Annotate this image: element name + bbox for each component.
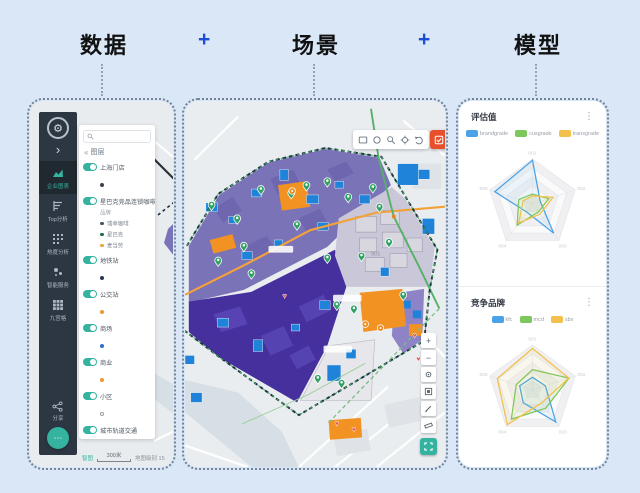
locate-button[interactable] xyxy=(421,367,436,382)
top-list-icon xyxy=(52,199,65,212)
nav-item-label: 九宫格 xyxy=(50,313,67,321)
map-toolbar xyxy=(353,130,429,149)
map-controls: + − xyxy=(420,333,437,455)
layer-toggle[interactable] xyxy=(83,290,97,298)
nav-item-top-list[interactable]: Top分析 xyxy=(39,194,77,227)
layer-label: 地铁站 xyxy=(100,255,119,265)
target-icon[interactable] xyxy=(400,135,410,145)
layers-button[interactable] xyxy=(421,384,436,399)
heart-marker-icon[interactable]: ♥ xyxy=(282,292,287,301)
layer-toggle[interactable] xyxy=(83,426,97,434)
layer-toggle[interactable] xyxy=(83,324,97,332)
layer-toggle[interactable] xyxy=(83,392,97,400)
radar-axis-label: 001 xyxy=(528,337,536,343)
brand-legend-title: 品牌 xyxy=(100,208,150,216)
dots-icon: ⋯ xyxy=(54,433,63,444)
radar-axis-label: 002 xyxy=(577,186,585,192)
layer-row: 地铁站 xyxy=(79,253,155,266)
nav-item-label: 热度分析 xyxy=(47,247,69,255)
header-plus-1: + xyxy=(198,28,210,52)
share-label: 分享 xyxy=(52,413,63,421)
fullscreen-button[interactable] xyxy=(420,438,437,455)
nav-item-grid[interactable]: 九宫格 xyxy=(39,293,77,326)
radar-axis-label: 003 xyxy=(559,243,567,249)
legend-item: cusgrade xyxy=(515,130,552,137)
radar-axis-label: 004 xyxy=(498,243,506,249)
nav-item-label: 企业图表 xyxy=(47,181,69,189)
legend-item: sbx xyxy=(551,316,574,323)
map-sliver xyxy=(154,111,173,463)
layer-label: 上海门店 xyxy=(100,162,125,172)
expand-icon xyxy=(424,442,433,451)
radar-axis-label: 003 xyxy=(559,429,567,435)
map-footer: 智图 300米 地图级别 15 xyxy=(82,453,170,462)
layer-legend-dot xyxy=(79,368,155,389)
layer-row: 上海商圈 xyxy=(79,436,155,439)
chart-legend: kfcmcdsbx xyxy=(459,316,606,323)
layer-label: 城市轨道交通 xyxy=(100,425,137,435)
model-section-box: 评估值⋮brandgradecusgradetransgrade00100200… xyxy=(456,98,609,470)
radar-chart: 001002003004005 xyxy=(459,324,606,452)
layers-panel-title: 图层 xyxy=(90,147,104,157)
confirm-region-button[interactable] xyxy=(430,130,445,149)
layers-panel: « 图层 上海门店星巴克竞品连锁咖啡店品牌瑞幸咖啡星巴克麦当劳地铁站公交站商场商… xyxy=(79,125,155,439)
layer-label: 商场 xyxy=(100,323,112,333)
area-chart-icon xyxy=(52,166,65,179)
radar-axis-label: 001 xyxy=(528,151,536,157)
layer-label: 公交站 xyxy=(100,289,119,299)
layer-toggle[interactable] xyxy=(83,358,97,366)
nav-item-area-chart[interactable]: 企业图表 xyxy=(39,161,77,194)
legend-item: mcd xyxy=(520,316,544,323)
layer-legend-dot xyxy=(79,402,155,423)
header-data-label: 数据 xyxy=(80,28,128,60)
locate-icon xyxy=(424,370,433,379)
poi-round-icon[interactable] xyxy=(362,321,368,328)
header-scene-label: 场景 xyxy=(292,28,340,60)
layer-toggle[interactable] xyxy=(83,163,97,171)
layer-toggle[interactable] xyxy=(83,256,97,264)
layer-legend-dot xyxy=(79,173,155,194)
logo-icon: ⚙ xyxy=(47,117,69,143)
layer-legend-dot xyxy=(79,266,155,287)
layers-icon xyxy=(424,387,433,396)
layer-row: 商场 xyxy=(79,321,155,334)
legend-item: brandgrade xyxy=(466,130,508,137)
scene-section-box: 901 ♥♥♥♥♥ + − xyxy=(182,98,448,470)
pencil-icon xyxy=(424,404,433,413)
layer-legend-dot xyxy=(79,334,155,355)
radar-axis-label: 004 xyxy=(498,429,506,435)
brand-legend: 品牌瑞幸咖啡星巴克麦当劳 xyxy=(79,207,155,253)
map-canvas[interactable]: 901 ♥♥♥♥♥ + − xyxy=(185,101,445,467)
layer-row: 上海门店 xyxy=(79,160,155,173)
header-model-label: 模型 xyxy=(514,28,562,60)
heatmap-icon xyxy=(52,232,65,245)
layer-label: 星巴克竞品连锁咖啡店 xyxy=(100,196,155,206)
layer-label: 小区 xyxy=(100,391,112,401)
circle-select-icon[interactable] xyxy=(372,135,382,145)
layer-label: 上海商圈 xyxy=(100,438,125,439)
nav-item-label: 智能服务 xyxy=(47,280,69,288)
nav-item-service-dots[interactable]: 智能服务 xyxy=(39,260,77,293)
layer-toggle[interactable] xyxy=(83,197,97,205)
card-title: 竞争品牌 xyxy=(471,297,505,309)
connector-line-scene xyxy=(313,64,315,96)
area-code-label: 901 xyxy=(371,252,380,258)
assistant-fab-button[interactable]: ⋯ xyxy=(47,427,69,449)
legend-item: transgrade xyxy=(559,130,599,137)
brand-legend-item: 瑞幸咖啡 xyxy=(100,218,155,229)
measure-button[interactable] xyxy=(421,418,436,433)
model-card-evaluation: 评估值⋮brandgradecusgradetransgrade00100200… xyxy=(459,101,606,286)
layer-row: 城市轨道交通 xyxy=(79,423,155,436)
poi-round-icon[interactable] xyxy=(377,325,383,332)
connector-line-data xyxy=(101,64,103,96)
share-button[interactable]: 分享 xyxy=(52,401,64,422)
kebab-menu-icon[interactable]: ⋮ xyxy=(584,299,594,307)
heart-marker-icon[interactable]: ♥ xyxy=(412,331,417,340)
zoom-level-label: 地图级别 15 xyxy=(135,454,165,462)
layer-row: 公交站 xyxy=(79,287,155,300)
layer-legend-dot xyxy=(79,300,155,321)
left-nav-rail: ⚙›企业图表Top分析热度分析智能服务九宫格 分享 ⋯ xyxy=(39,112,77,455)
radar-axis-label: 005 xyxy=(480,186,488,192)
map-svg: 901 ♥♥♥♥♥ xyxy=(185,101,445,467)
chart-legend: brandgradecusgradetransgrade xyxy=(459,130,606,137)
service-dots-icon xyxy=(52,265,65,278)
connector-line-model xyxy=(535,64,537,96)
poi-round-icon[interactable] xyxy=(289,188,295,195)
brand-legend-item: 麦当劳 xyxy=(100,240,155,251)
search-input[interactable] xyxy=(83,130,151,143)
kebab-menu-icon[interactable]: ⋮ xyxy=(584,113,594,121)
layer-row: 小区 xyxy=(79,389,155,402)
data-section-box: ⚙›企业图表Top分析热度分析智能服务九宫格 分享 ⋯ « 图层 上海门店星巴克… xyxy=(27,98,176,470)
header-plus-2: + xyxy=(418,28,430,52)
radar-chart: 001002003004005 xyxy=(459,138,606,266)
nav-item-label: Top分析 xyxy=(48,214,68,222)
layer-row: 星巴克竞品连锁咖啡店 xyxy=(79,194,155,207)
collapse-chevron-icon[interactable]: › xyxy=(56,143,60,161)
card-title: 评估值 xyxy=(471,111,497,123)
layer-row: 商业 xyxy=(79,355,155,368)
layer-label: 商业 xyxy=(100,357,112,367)
zoom-select-icon[interactable] xyxy=(386,135,396,145)
check-box-icon xyxy=(434,135,444,145)
zoom-in-button[interactable]: + xyxy=(421,333,436,348)
heart-marker-icon[interactable]: ♥ xyxy=(335,419,340,428)
model-card-competitors: 竞争品牌⋮kfcmcdsbx001002003004005 xyxy=(459,286,606,467)
draw-button[interactable] xyxy=(421,401,436,416)
share-icon xyxy=(52,401,63,412)
grid-icon xyxy=(52,298,65,311)
ruler-icon xyxy=(424,421,433,430)
undo-icon[interactable] xyxy=(414,135,424,145)
zoom-out-button[interactable]: − xyxy=(421,350,436,365)
map-scale: 300米 xyxy=(97,453,131,462)
radar-axis-label: 005 xyxy=(480,372,488,378)
collapse-panel-icon[interactable]: « xyxy=(84,148,88,157)
heart-marker-icon[interactable]: ♥ xyxy=(352,425,357,434)
nav-item-heatmap[interactable]: 热度分析 xyxy=(39,227,77,260)
rect-select-icon[interactable] xyxy=(358,135,368,145)
basemap-label[interactable]: 智图 xyxy=(82,454,93,462)
legend-item: kfc xyxy=(492,316,513,323)
search-icon xyxy=(87,133,94,140)
brand-legend-item: 星巴克 xyxy=(100,229,155,240)
radar-axis-label: 002 xyxy=(577,372,585,378)
